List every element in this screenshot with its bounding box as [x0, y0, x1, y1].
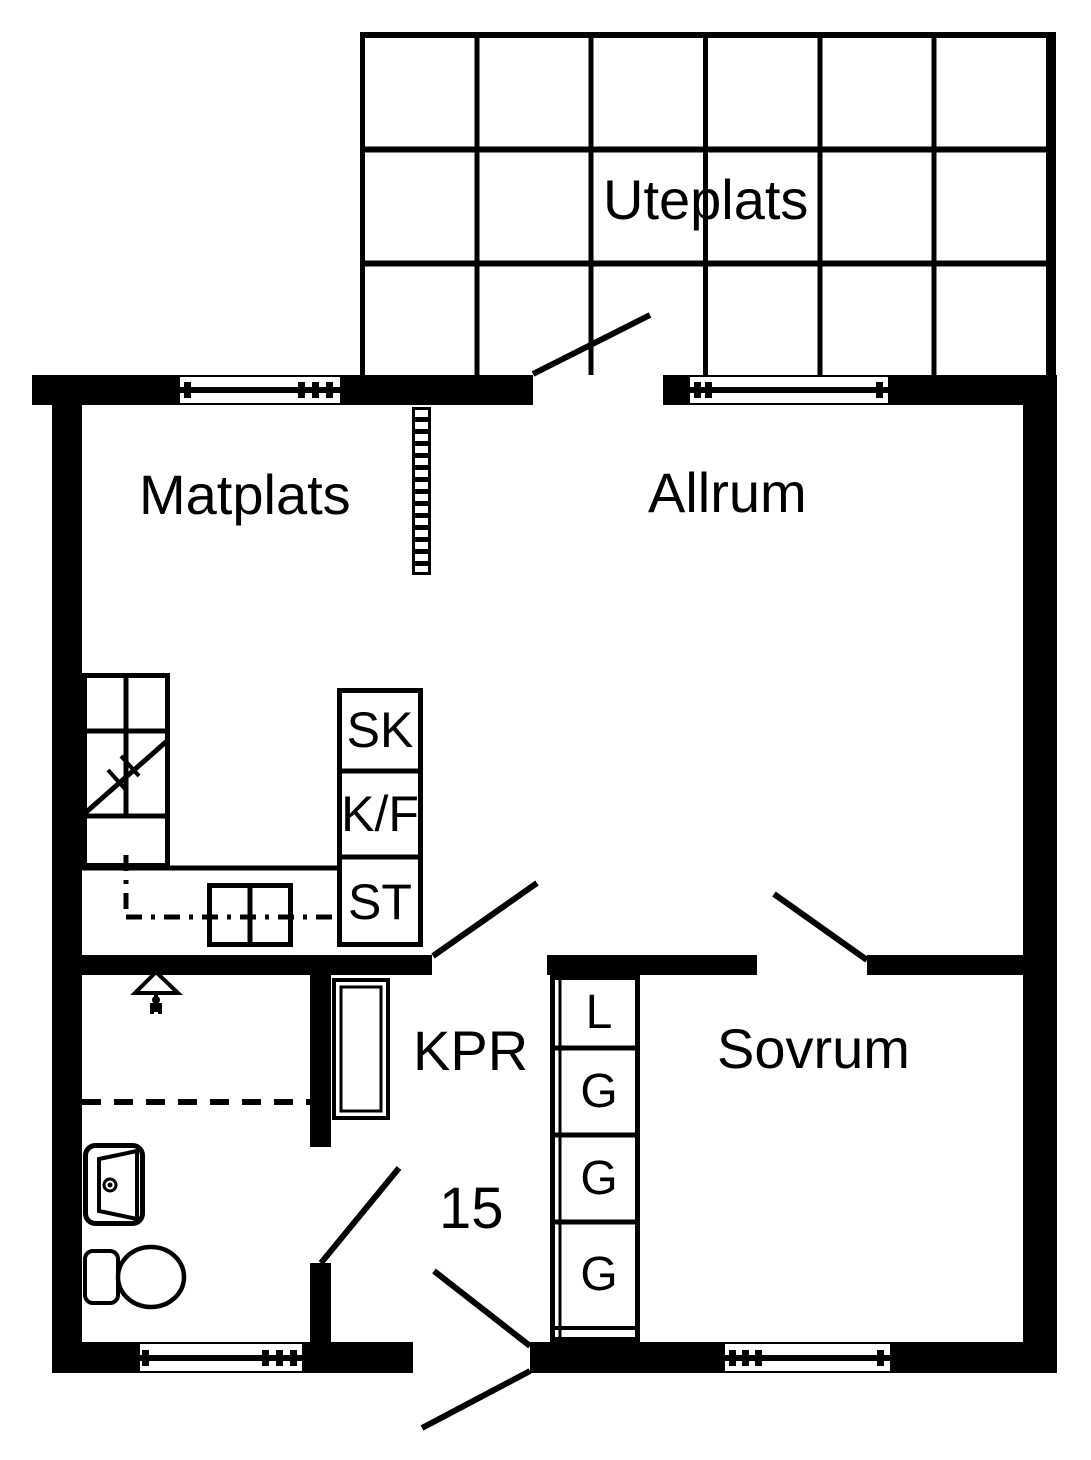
cabinet-label-kf: K/F	[337, 771, 423, 857]
wardrobe-label-g2: G	[560, 1135, 638, 1222]
allrum-hall-door-swing	[433, 883, 537, 956]
wardrobe-label-g1: G	[560, 1048, 638, 1135]
fixtures-overlay	[0, 0, 1091, 1460]
unit-number-label: 15	[439, 1180, 504, 1238]
kpr-closet-inner	[341, 987, 381, 1111]
floorplan-canvas: Uteplats Matplats Allrum KPR Sovrum 15 S…	[0, 0, 1091, 1460]
toilet-bowl	[118, 1247, 184, 1307]
shower-head-icon	[150, 1003, 154, 1014]
room-label-sovrum: Sovrum	[717, 1021, 910, 1077]
room-label-uteplats: Uteplats	[603, 172, 808, 228]
shower-head-icon	[154, 995, 158, 1012]
cabinet-label-st: ST	[337, 857, 423, 947]
entry-door-swing-inner	[434, 1271, 530, 1346]
entry-door-swing-outer	[422, 1371, 530, 1428]
toilet-tank	[85, 1251, 118, 1303]
uteplats-door-swing	[533, 315, 650, 374]
shower-head-icon	[158, 1003, 162, 1014]
wardrobe-label-l: L	[560, 978, 638, 1048]
wardrobe-label-g3: G	[560, 1222, 638, 1328]
bathroom-door-swing	[321, 1168, 399, 1263]
sovrum-door-swing	[774, 894, 867, 960]
sink-drain-dot	[108, 1183, 113, 1188]
room-label-matplats: Matplats	[139, 467, 351, 523]
shower-icon	[135, 972, 178, 993]
room-label-kpr: KPR	[413, 1023, 528, 1079]
room-label-allrum: Allrum	[648, 465, 807, 521]
cabinet-label-sk: SK	[337, 688, 423, 771]
